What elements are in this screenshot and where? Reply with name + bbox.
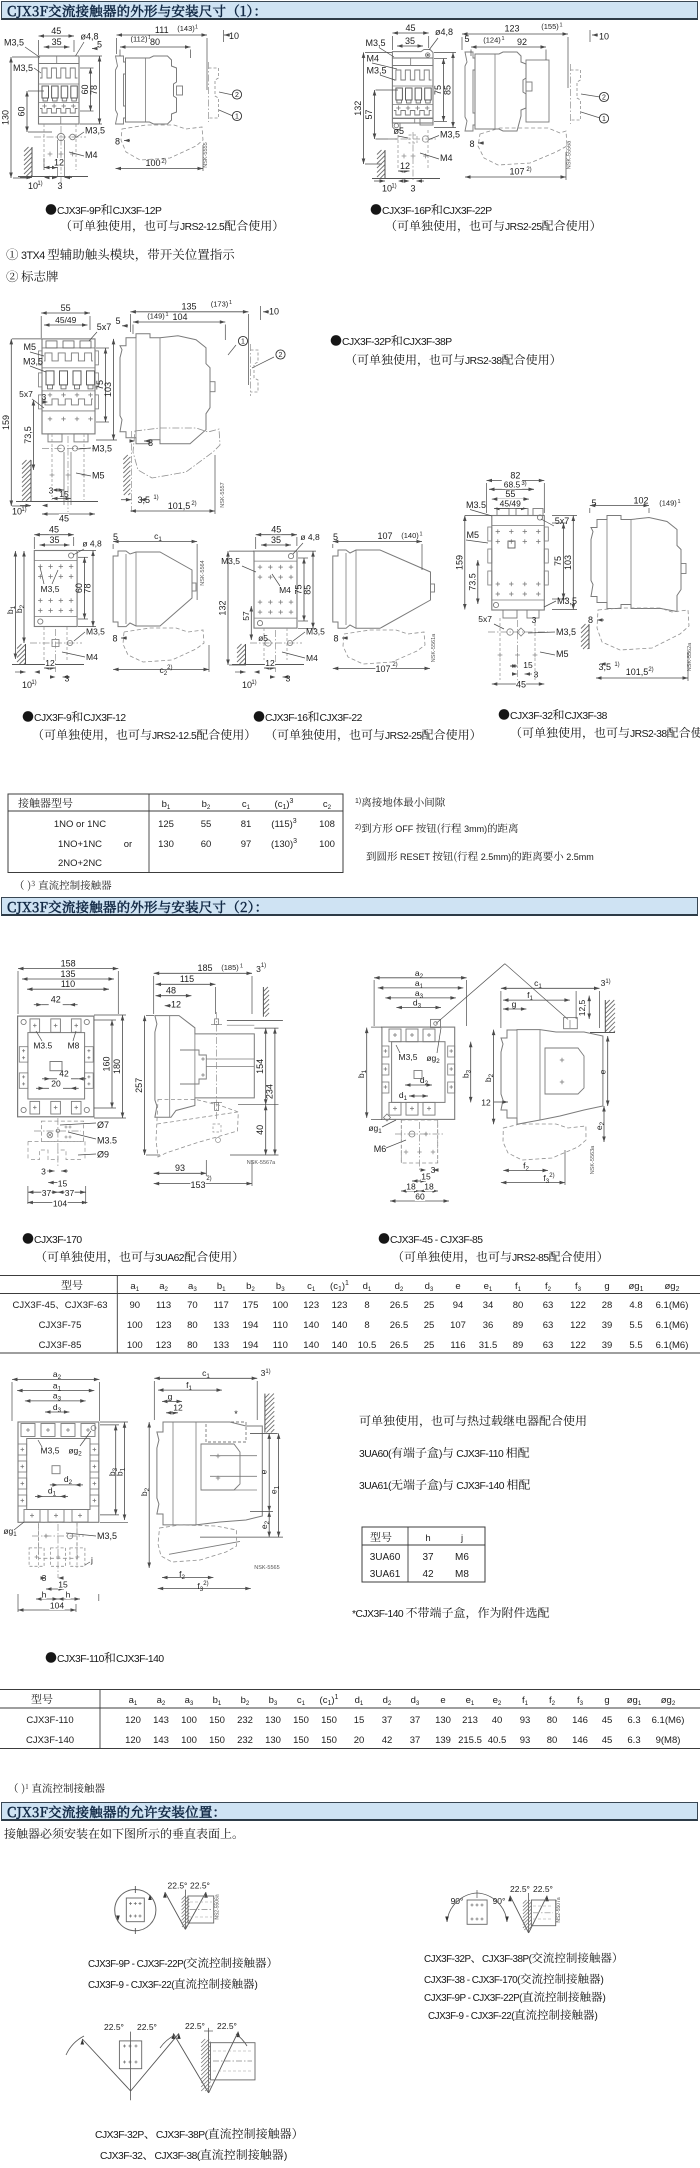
svg-text:63: 63 [543, 1340, 554, 1351]
svg-text:M3,5: M3,5 [366, 66, 386, 76]
svg-text:1: 1 [559, 23, 562, 29]
svg-text:232: 232 [237, 1715, 253, 1726]
svg-text:140: 140 [303, 1320, 319, 1331]
svg-text:M3,5: M3,5 [306, 627, 325, 637]
svg-text:125: 125 [158, 819, 174, 830]
svg-text:48: 48 [166, 986, 176, 996]
svg-text:132: 132 [218, 601, 228, 616]
svg-text:型号: 型号 [370, 1529, 392, 1545]
svg-text:h: h [42, 1590, 47, 1600]
svg-text:194: 194 [243, 1340, 259, 1351]
svg-text:93: 93 [520, 1735, 531, 1746]
svg-text:1NO or 1NC: 1NO or 1NC [54, 819, 106, 830]
svg-text:NSK-5562a: NSK-5562a [687, 642, 693, 671]
svg-text:140: 140 [332, 1320, 348, 1331]
svg-text:a2: a2 [159, 1281, 168, 1293]
svg-text:Ø9: Ø9 [97, 1150, 109, 1160]
svg-text:15: 15 [421, 1172, 431, 1182]
svg-text:d1: d1 [48, 1485, 57, 1497]
svg-text:M3,5: M3,5 [221, 556, 240, 566]
svg-text:b2: b2 [246, 1281, 255, 1293]
svg-text:1NO+1NC: 1NO+1NC [58, 839, 102, 850]
svg-text:M4: M4 [85, 150, 98, 160]
svg-text:8: 8 [112, 634, 117, 644]
svg-text:1: 1 [602, 116, 606, 123]
svg-text:1): 1) [265, 1369, 270, 1375]
svg-text:CJX3F-85: CJX3F-85 [39, 1340, 82, 1351]
svg-text:37: 37 [42, 1188, 52, 1198]
svg-text:57: 57 [241, 611, 251, 621]
svg-text:139: 139 [435, 1735, 451, 1746]
svg-text:116: 116 [450, 1340, 465, 1351]
svg-text:1): 1) [31, 680, 36, 686]
svg-text:25: 25 [424, 1340, 435, 1351]
svg-text:90: 90 [130, 1300, 141, 1311]
svg-text:(124): (124) [483, 36, 501, 45]
svg-text:M3,5: M3,5 [557, 596, 577, 606]
svg-text:1): 1) [261, 963, 266, 969]
svg-text:146: 146 [572, 1735, 588, 1746]
svg-text:22.5°: 22.5° [510, 1884, 530, 1894]
svg-text:107: 107 [377, 531, 392, 541]
svg-text:e: e [259, 1469, 269, 1474]
svg-text:NSK-5557: NSK-5557 [220, 482, 226, 507]
svg-text:185: 185 [197, 963, 212, 973]
svg-text:a1: a1 [130, 1281, 139, 1293]
svg-text:NSK-5556a: NSK-5556a [567, 140, 573, 169]
svg-text:42: 42 [422, 1569, 434, 1580]
svg-text:øg1: øg1 [627, 1695, 642, 1707]
svg-text:1: 1 [677, 499, 680, 505]
svg-text:20: 20 [354, 1735, 365, 1746]
svg-text:45: 45 [51, 26, 61, 36]
svg-text:d3: d3 [411, 1695, 420, 1707]
svg-text:NSK-5564: NSK-5564 [200, 560, 206, 585]
svg-text:10: 10 [229, 31, 239, 41]
svg-text:110: 110 [273, 1340, 288, 1351]
svg-text:d1: d1 [355, 1695, 364, 1707]
svg-text:(115)3: (115)3 [271, 818, 296, 830]
svg-text:(c1)1: (c1)1 [320, 1694, 339, 1707]
svg-text:M4: M4 [306, 653, 318, 663]
svg-text:d2: d2 [64, 1474, 73, 1486]
svg-text:3: 3 [49, 486, 54, 496]
svg-text:133: 133 [213, 1340, 229, 1351]
svg-text:c22): c22) [159, 665, 172, 677]
svg-text:80: 80 [513, 1300, 524, 1311]
svg-text:(140): (140) [401, 531, 419, 540]
svg-text:(c1)1: (c1)1 [330, 1280, 349, 1293]
svg-text:6.1(M6): 6.1(M6) [656, 1320, 689, 1331]
svg-text:104: 104 [172, 312, 187, 322]
svg-text:45: 45 [516, 680, 526, 690]
svg-text:73,5: 73,5 [23, 426, 33, 444]
svg-text:1: 1 [241, 339, 245, 346]
svg-text:107: 107 [450, 1320, 466, 1331]
svg-text:85: 85 [443, 85, 453, 95]
svg-text:60: 60 [17, 106, 27, 116]
svg-text:M3,5: M3,5 [41, 584, 60, 594]
svg-text:d1: d1 [363, 1281, 372, 1293]
svg-text:b3: b3 [276, 1281, 285, 1293]
svg-text:M3,5: M3,5 [41, 1446, 60, 1456]
svg-text:15: 15 [59, 489, 69, 499]
svg-text:26.5: 26.5 [390, 1340, 409, 1351]
svg-text:5: 5 [97, 40, 102, 50]
svg-text:øg2: øg2 [426, 1053, 440, 1065]
svg-text:40: 40 [492, 1715, 503, 1726]
svg-text:(185): (185) [221, 963, 239, 972]
svg-text:øg2: øg2 [661, 1695, 676, 1707]
svg-text:(c1)3: (c1)3 [275, 798, 294, 811]
svg-text:130: 130 [1, 110, 11, 125]
svg-text:M5: M5 [466, 530, 479, 540]
svg-text:b2: b2 [202, 799, 211, 811]
svg-text:101,5: 101,5 [626, 667, 649, 677]
svg-text:1): 1) [21, 507, 26, 513]
svg-text:NSK-5565: NSK-5565 [254, 1565, 279, 1571]
svg-text:M8: M8 [455, 1569, 469, 1580]
svg-text:M3,5: M3,5 [86, 627, 105, 637]
svg-text:a3: a3 [185, 1695, 194, 1707]
svg-text:M3.5: M3.5 [466, 500, 486, 510]
svg-text:e: e [455, 1281, 460, 1292]
svg-text:5x7: 5x7 [555, 516, 570, 526]
svg-text:M3,5: M3,5 [97, 1531, 117, 1541]
svg-text:150: 150 [209, 1715, 225, 1726]
svg-text:18: 18 [424, 1182, 434, 1192]
svg-text:M3,5: M3,5 [23, 357, 43, 367]
svg-text:63: 63 [543, 1320, 554, 1331]
svg-text:e2: e2 [493, 1695, 502, 1707]
svg-text:22.5°: 22.5° [217, 2021, 237, 2031]
svg-text:101,5: 101,5 [168, 501, 191, 511]
svg-text:f2: f2 [545, 1281, 552, 1293]
svg-text:ø5: ø5 [393, 126, 404, 136]
svg-text:g: g [168, 1392, 173, 1402]
svg-text:NSK-5561a: NSK-5561a [431, 633, 437, 662]
svg-text:M4: M4 [440, 153, 453, 163]
svg-text:150: 150 [321, 1715, 337, 1726]
svg-text:100: 100 [145, 158, 160, 168]
svg-text:12: 12 [171, 1000, 181, 1010]
svg-text:12: 12 [45, 658, 55, 668]
svg-text:115: 115 [180, 974, 194, 984]
svg-text:型号: 型号 [31, 1691, 53, 1707]
svg-text:øg2: øg2 [665, 1281, 680, 1293]
svg-text:M3.5: M3.5 [97, 1136, 117, 1146]
svg-text:ø 4,8: ø 4,8 [82, 539, 102, 549]
svg-text:35: 35 [49, 535, 59, 545]
svg-text:b1: b1 [356, 1069, 368, 1078]
svg-text:22.5°: 22.5° [168, 1881, 188, 1891]
svg-text:5x7: 5x7 [97, 322, 112, 332]
svg-text:1): 1) [153, 495, 158, 501]
svg-text:f32): f32) [197, 1581, 208, 1593]
svg-text:22.5°: 22.5° [190, 1881, 210, 1891]
svg-text:8: 8 [364, 1320, 369, 1331]
svg-text:5.5: 5.5 [629, 1340, 642, 1351]
svg-text:159: 159 [1, 415, 11, 430]
svg-text:133: 133 [213, 1320, 229, 1331]
svg-text:39: 39 [602, 1320, 613, 1331]
svg-text:110: 110 [273, 1320, 288, 1331]
svg-text:15: 15 [58, 1580, 68, 1590]
svg-text:70: 70 [187, 1300, 198, 1311]
svg-text:63: 63 [543, 1300, 554, 1311]
svg-text:26.5: 26.5 [390, 1300, 409, 1311]
svg-text:140: 140 [332, 1340, 348, 1351]
svg-text:接触器型号: 接触器型号 [18, 795, 73, 811]
svg-text:92: 92 [517, 37, 527, 47]
svg-text:6.3: 6.3 [627, 1735, 640, 1746]
svg-text:øg1: øg1 [368, 1123, 382, 1135]
svg-text:3UA61: 3UA61 [370, 1569, 401, 1580]
svg-text:215.5: 215.5 [458, 1735, 482, 1746]
svg-text:35: 35 [52, 37, 62, 47]
svg-text:80: 80 [547, 1715, 558, 1726]
svg-text:e: e [440, 1695, 445, 1706]
svg-text:M5: M5 [23, 342, 36, 352]
svg-text:c2: c2 [323, 799, 332, 811]
svg-text:36: 36 [483, 1320, 494, 1331]
svg-text:or: or [124, 839, 132, 850]
svg-text:M3,5: M3,5 [399, 1052, 418, 1062]
svg-text:135: 135 [60, 969, 75, 979]
svg-text:117: 117 [214, 1300, 229, 1311]
svg-text:3: 3 [431, 1165, 436, 1175]
svg-text:28: 28 [602, 1300, 613, 1311]
svg-text:2: 2 [279, 352, 283, 359]
svg-text:8: 8 [115, 137, 120, 147]
svg-text:234: 234 [264, 1084, 274, 1099]
svg-text:øg2: øg2 [68, 1446, 82, 1458]
svg-text:55: 55 [61, 303, 71, 313]
svg-text:1)离接地体最小间隙: 1)离接地体最小间隙 [355, 795, 446, 810]
svg-text:146: 146 [572, 1715, 588, 1726]
svg-text:NSK-5567a: NSK-5567a [247, 1160, 276, 1166]
svg-text:2): 2) [648, 667, 653, 673]
svg-text:1: 1 [195, 25, 198, 31]
svg-text:130: 130 [158, 839, 174, 850]
svg-text:6.1(M6): 6.1(M6) [656, 1340, 689, 1351]
svg-text:1): 1) [605, 979, 610, 985]
svg-text:90°: 90° [451, 1896, 464, 1906]
svg-text:213: 213 [462, 1715, 478, 1726]
svg-text:180: 180 [112, 1059, 122, 1074]
svg-text:a3: a3 [188, 1281, 197, 1293]
svg-text:CJX3F-45、CJX3F-63: CJX3F-45、CJX3F-63 [12, 1297, 107, 1311]
svg-text:e: e [598, 1069, 608, 1074]
svg-text:3): 3) [521, 481, 526, 487]
svg-text:45: 45 [602, 1735, 613, 1746]
svg-text:(143): (143) [177, 24, 195, 33]
svg-text:M3,5: M3,5 [13, 63, 33, 73]
svg-text:75: 75 [553, 556, 563, 566]
svg-text:31.5: 31.5 [479, 1340, 498, 1351]
svg-text:40.5: 40.5 [488, 1735, 507, 1746]
svg-text:e1: e1 [484, 1281, 493, 1293]
svg-text:123: 123 [156, 1320, 172, 1331]
svg-text:(155): (155) [541, 22, 559, 31]
svg-text:b1: b1 [213, 1695, 222, 1707]
svg-text:M4: M4 [366, 54, 379, 64]
svg-text:123: 123 [504, 24, 519, 34]
svg-text:37: 37 [410, 1735, 421, 1746]
svg-text:1: 1 [165, 312, 168, 318]
svg-text:CJX3F-140: CJX3F-140 [26, 1735, 74, 1746]
svg-text:3: 3 [534, 670, 539, 680]
svg-text:8: 8 [364, 1300, 369, 1311]
svg-text:g: g [512, 999, 517, 1009]
svg-text:a2: a2 [157, 1695, 166, 1707]
svg-text:40: 40 [255, 1125, 265, 1135]
svg-text:(173): (173) [211, 300, 229, 309]
svg-text:123: 123 [156, 1340, 172, 1351]
svg-text:3: 3 [532, 615, 537, 625]
svg-text:130: 130 [265, 1735, 281, 1746]
svg-text:ø4,8: ø4,8 [435, 27, 453, 37]
svg-text:89: 89 [513, 1320, 524, 1331]
svg-text:135: 135 [181, 302, 196, 312]
svg-text:M5: M5 [92, 471, 105, 481]
svg-text:57: 57 [364, 109, 374, 119]
svg-text:b1: b1 [162, 799, 171, 811]
svg-text:194: 194 [243, 1320, 259, 1331]
svg-text:2)到方形 OFF 按钮(行程 3mm)的距离: 2)到方形 OFF 按钮(行程 3mm)的距离 [355, 821, 519, 836]
svg-text:104: 104 [50, 1601, 64, 1611]
svg-text:NS2-5507a: NS2-5507a [556, 1897, 562, 1923]
svg-text:150: 150 [209, 1735, 225, 1746]
svg-text:100: 100 [272, 1300, 288, 1311]
svg-text:a1: a1 [129, 1695, 138, 1707]
svg-text:f1: f1 [522, 1695, 529, 1707]
svg-text:1: 1 [501, 36, 504, 42]
svg-text:78: 78 [89, 85, 99, 95]
svg-text:150: 150 [293, 1735, 309, 1746]
svg-text:45: 45 [271, 525, 281, 535]
svg-text:22.5°: 22.5° [533, 1884, 553, 1894]
svg-text:34: 34 [483, 1300, 494, 1311]
svg-text:122: 122 [570, 1320, 586, 1331]
svg-text:22.5°: 22.5° [104, 2022, 124, 2032]
svg-text:M3,5: M3,5 [440, 130, 460, 140]
svg-text:Ø7: Ø7 [97, 1120, 109, 1130]
svg-text:M3.5: M3.5 [33, 1041, 52, 1051]
svg-text:d3: d3 [425, 1281, 434, 1293]
svg-text:45: 45 [59, 514, 69, 524]
svg-text:3: 3 [42, 1573, 47, 1583]
svg-text:45: 45 [406, 23, 416, 33]
svg-text:M3,5: M3,5 [556, 627, 576, 637]
svg-text:25: 25 [424, 1320, 435, 1331]
svg-text:143: 143 [153, 1735, 169, 1746]
svg-text:2): 2) [161, 159, 166, 165]
svg-text:60: 60 [201, 839, 212, 850]
svg-text:85: 85 [303, 585, 313, 595]
svg-text:10: 10 [599, 32, 609, 42]
svg-text:140: 140 [303, 1340, 319, 1351]
svg-text:j: j [90, 1555, 93, 1565]
svg-text:(130)3: (130)3 [271, 838, 297, 850]
svg-text:M4: M4 [86, 652, 98, 662]
svg-text:12: 12 [54, 158, 64, 168]
svg-text:f2: f2 [179, 1569, 185, 1581]
svg-text:12: 12 [173, 1403, 183, 1413]
svg-text:（ )3 直流控制接触器: （ )3 直流控制接触器 [14, 878, 112, 893]
svg-text:h: h [66, 1590, 71, 1600]
svg-text:20: 20 [51, 1078, 61, 1088]
svg-text:(149): (149) [659, 499, 677, 508]
svg-text:132: 132 [353, 101, 363, 116]
svg-text:123: 123 [303, 1300, 319, 1311]
svg-text:150: 150 [321, 1735, 337, 1746]
svg-text:45: 45 [49, 525, 59, 535]
svg-text:80: 80 [187, 1320, 198, 1331]
svg-text:100: 100 [127, 1320, 143, 1331]
svg-text:111: 111 [155, 25, 169, 35]
svg-text:175: 175 [243, 1300, 259, 1311]
svg-text:2): 2) [526, 167, 531, 173]
svg-text:(149): (149) [147, 312, 165, 321]
svg-text:102: 102 [633, 496, 648, 506]
svg-text:1): 1) [37, 181, 42, 187]
svg-text:5.5: 5.5 [629, 1320, 642, 1331]
svg-text:M3,5: M3,5 [92, 444, 112, 454]
svg-text:ø4,8: ø4,8 [80, 32, 98, 42]
svg-text:3: 3 [410, 184, 415, 194]
svg-text:5: 5 [464, 34, 469, 44]
svg-text:1: 1 [235, 114, 239, 121]
svg-text:2: 2 [235, 92, 239, 99]
svg-text:NSK-5563a: NSK-5563a [590, 1145, 596, 1174]
svg-text:22.5°: 22.5° [137, 2022, 157, 2032]
svg-text:8: 8 [588, 615, 593, 625]
svg-text:4.8: 4.8 [629, 1300, 642, 1311]
svg-text:CJX3F-110: CJX3F-110 [26, 1715, 73, 1726]
svg-text:113: 113 [156, 1300, 171, 1311]
svg-text:d2: d2 [395, 1281, 404, 1293]
svg-text:c1: c1 [242, 799, 251, 811]
svg-text:1: 1 [229, 300, 232, 306]
svg-text:1): 1) [251, 680, 256, 686]
svg-text:60: 60 [415, 1192, 425, 1202]
svg-text:f3: f3 [575, 1281, 582, 1293]
svg-text:M3,5: M3,5 [4, 38, 24, 48]
svg-text:97: 97 [241, 839, 252, 850]
svg-text:22.5°: 22.5° [185, 2021, 205, 2031]
svg-text:1): 1) [391, 184, 396, 190]
svg-text:12: 12 [265, 658, 275, 668]
svg-text:3: 3 [286, 674, 291, 684]
svg-text:2): 2) [206, 1176, 211, 1182]
svg-text:CJX3F-75: CJX3F-75 [39, 1320, 82, 1331]
svg-text:1): 1) [614, 662, 619, 668]
svg-text:5x7: 5x7 [19, 389, 33, 399]
svg-text:5x7: 5x7 [478, 614, 492, 624]
svg-text:37: 37 [410, 1715, 421, 1726]
svg-text:c1: c1 [307, 1281, 316, 1293]
svg-text:100: 100 [127, 1340, 143, 1351]
svg-text:ø5: ø5 [258, 633, 268, 643]
svg-text:（ )1 直流控制接触器: （ )1 直流控制接触器 [8, 1781, 105, 1796]
svg-text:143: 143 [153, 1715, 169, 1726]
svg-text:6.3: 6.3 [627, 1715, 640, 1726]
svg-text:42: 42 [382, 1735, 393, 1746]
svg-text:到圆形 RESET 按钮(行程 2.5mm)的距离要小 2.: 到圆形 RESET 按钮(行程 2.5mm)的距离要小 2.5mm [366, 849, 594, 864]
svg-text:103: 103 [563, 555, 573, 570]
svg-text:90°: 90° [493, 1896, 506, 1906]
